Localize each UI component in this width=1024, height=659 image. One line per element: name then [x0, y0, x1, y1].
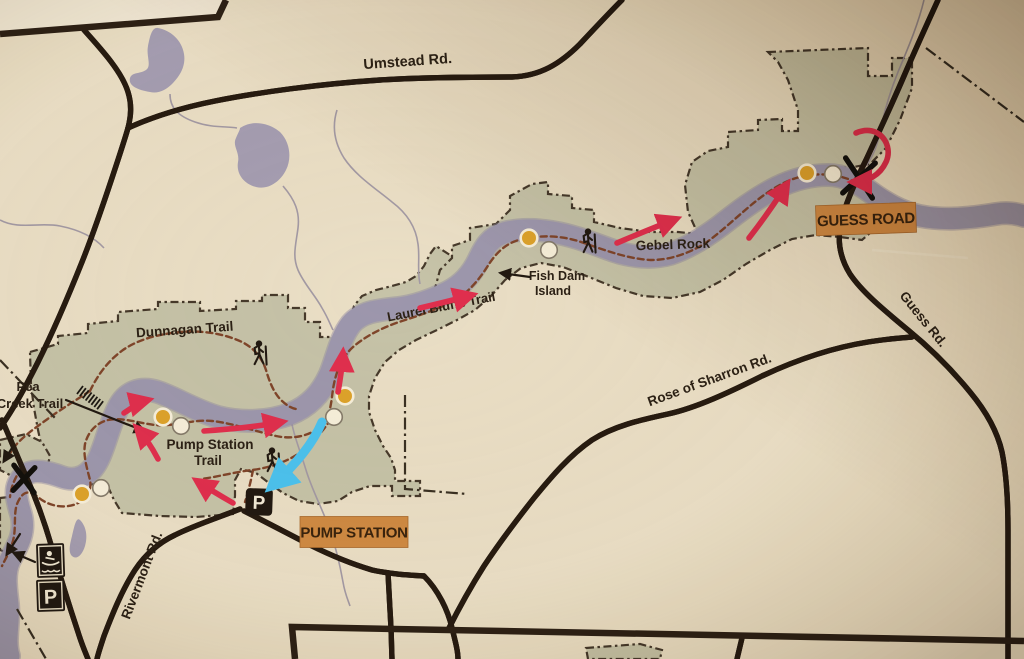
trail-map-photo: Umstead Rd. Guess Rd. Rose of Sharron Rd…: [0, 0, 1024, 659]
vignette-overlay-corner: [0, 0, 1024, 659]
map-canvas: Umstead Rd. Guess Rd. Rose of Sharron Rd…: [0, 0, 1024, 659]
